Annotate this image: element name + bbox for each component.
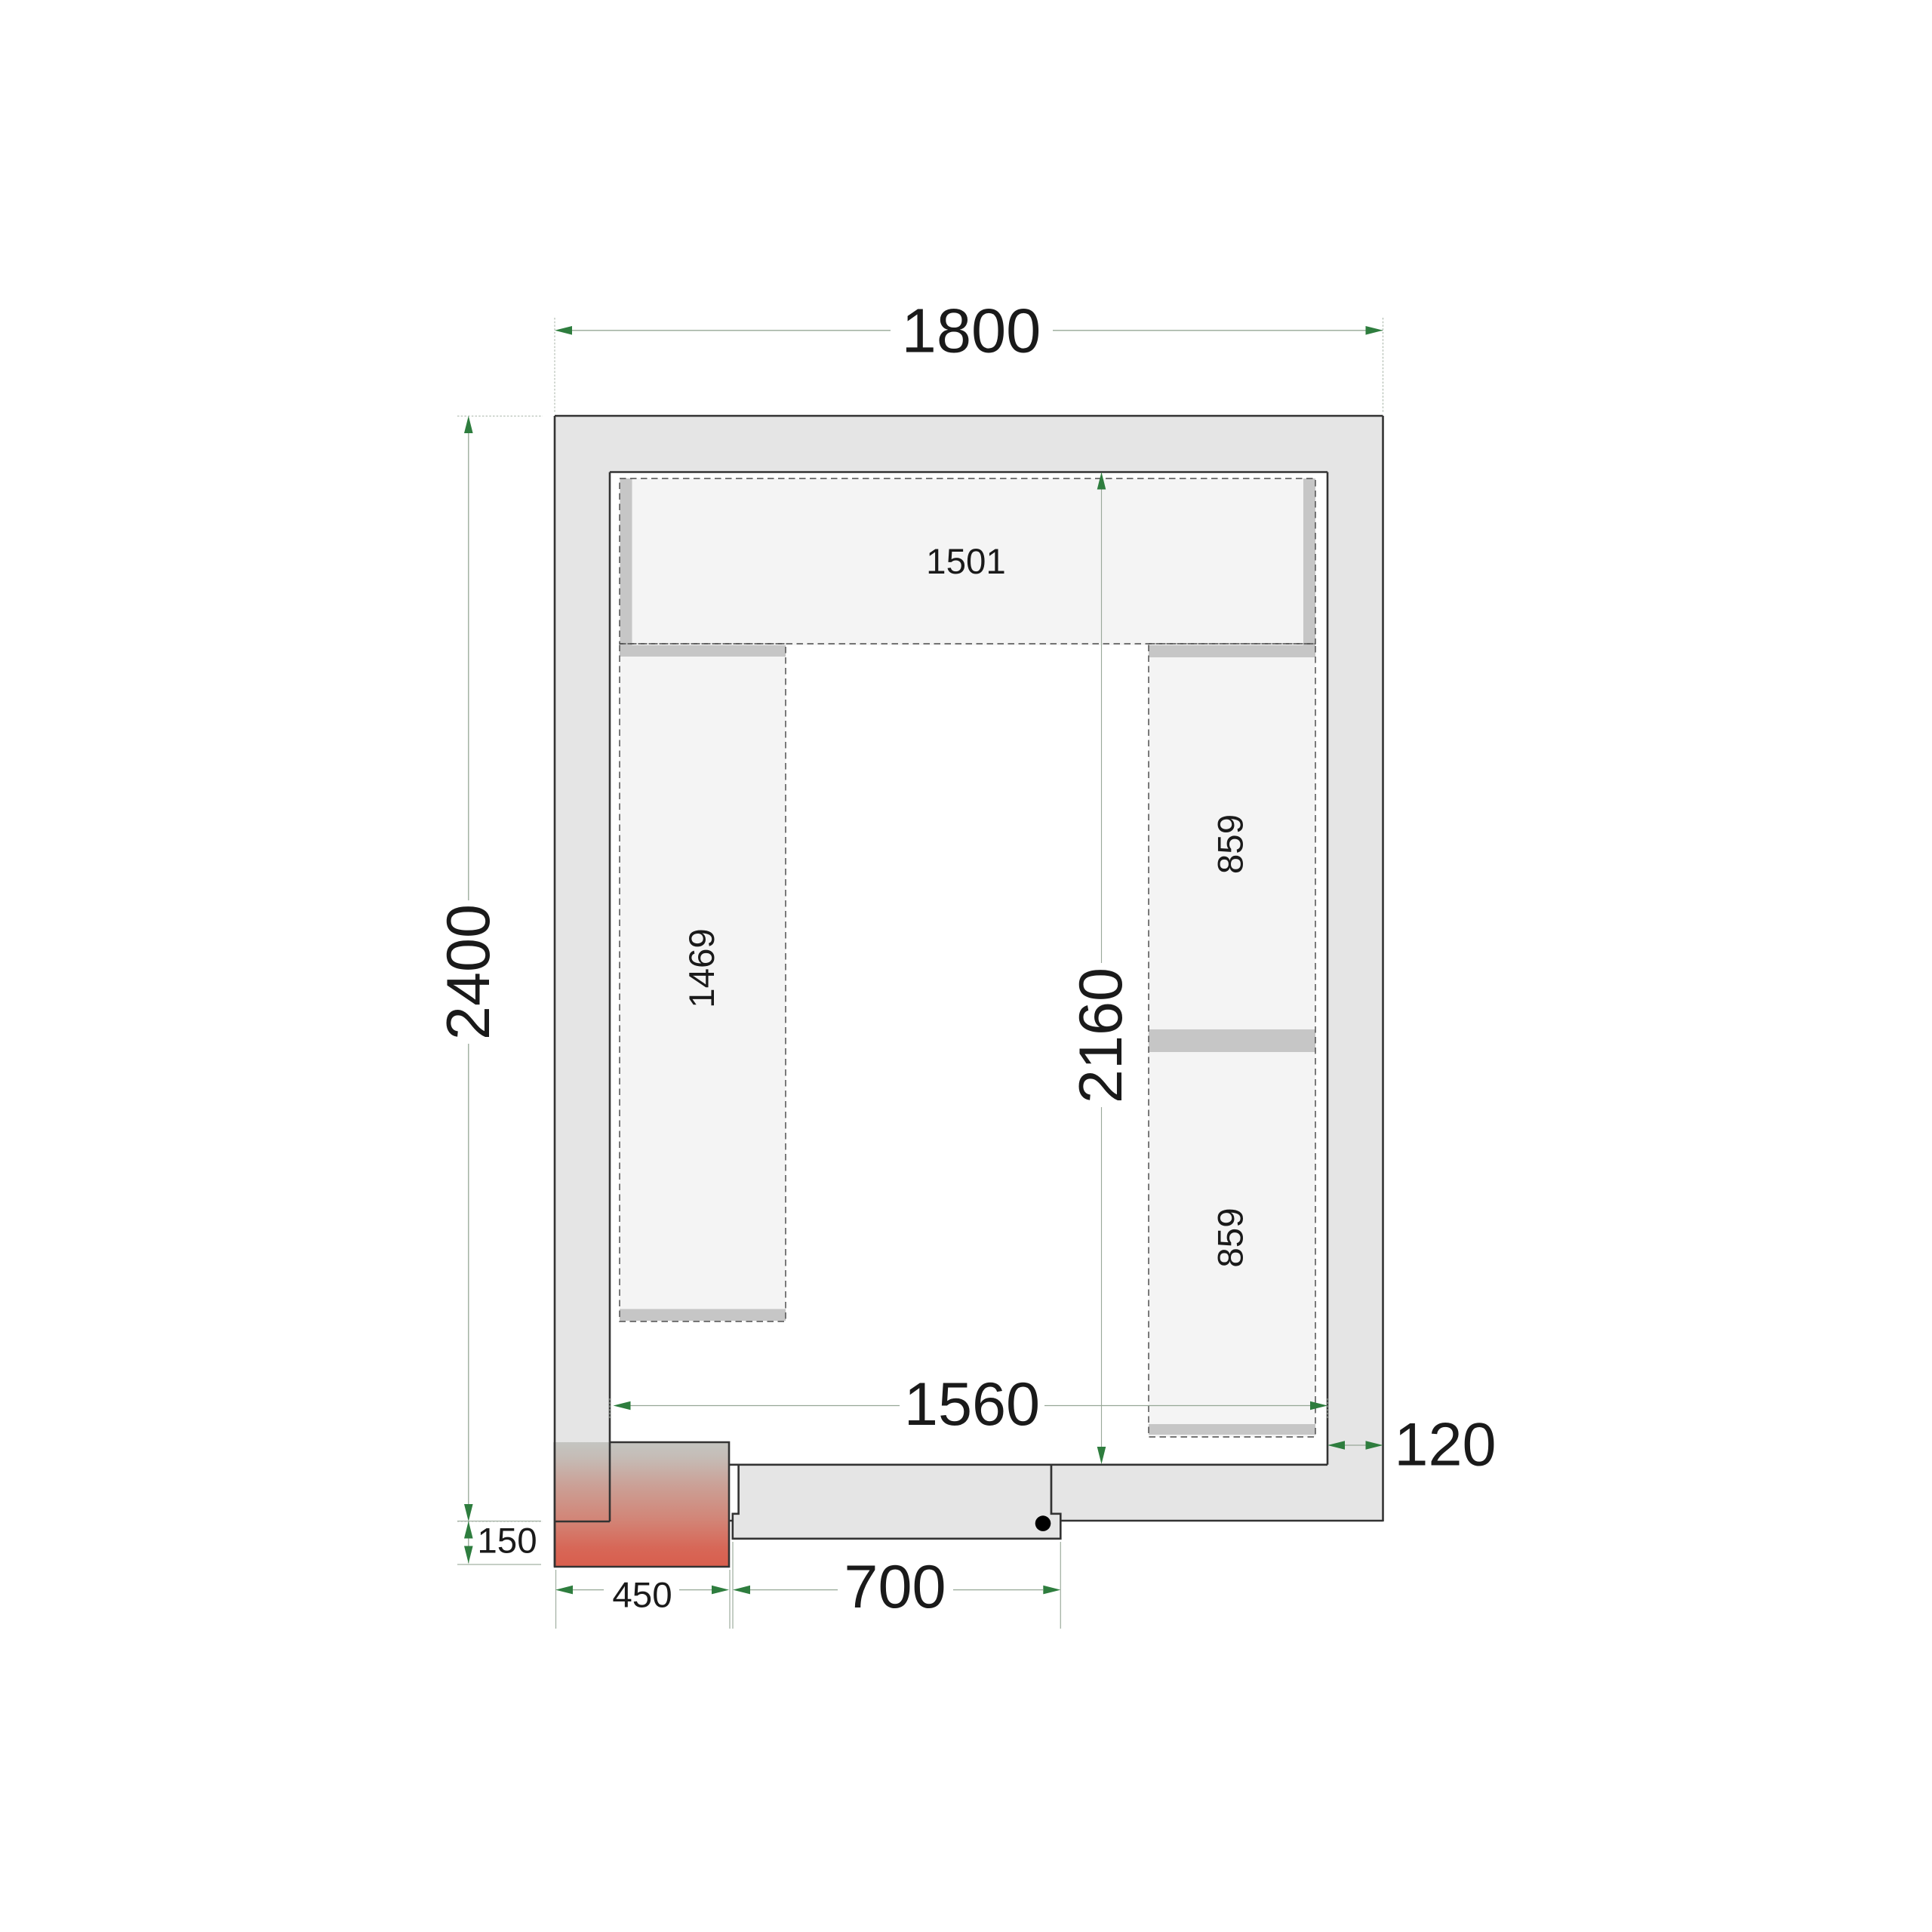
svg-text:2160: 2160 xyxy=(1067,968,1135,1103)
svg-text:120: 120 xyxy=(1394,1411,1496,1479)
svg-text:1800: 1800 xyxy=(902,295,1041,365)
svg-text:1560: 1560 xyxy=(904,1371,1040,1438)
svg-text:1501: 1501 xyxy=(926,542,1006,582)
svg-text:1469: 1469 xyxy=(682,928,722,1008)
svg-text:450: 450 xyxy=(612,1576,672,1616)
svg-text:859: 859 xyxy=(1211,814,1251,874)
svg-text:150: 150 xyxy=(477,1521,537,1561)
svg-text:859: 859 xyxy=(1211,1207,1251,1267)
svg-text:700: 700 xyxy=(844,1553,946,1621)
svg-text:2400: 2400 xyxy=(435,904,503,1040)
